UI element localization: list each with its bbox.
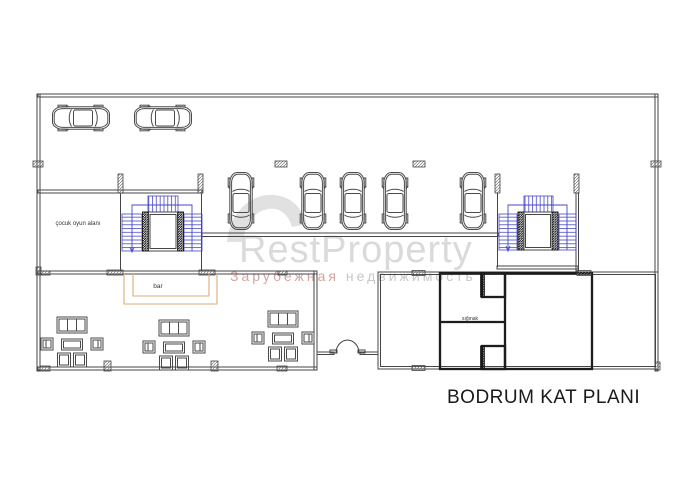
car-icon xyxy=(340,173,366,230)
seating-group xyxy=(252,311,314,361)
lounge-right-wall xyxy=(314,271,317,370)
top-wall xyxy=(38,94,658,97)
corridor-edge xyxy=(202,233,498,237)
car-icon xyxy=(300,173,326,230)
car-icon xyxy=(53,105,110,131)
elevator-shaft-wall xyxy=(178,212,184,251)
basement-floor-plan-page: RestProperty Зарубежная недвижимость xyxy=(0,0,689,480)
entrance-double-door xyxy=(330,340,365,353)
right-building-outer-wall xyxy=(378,272,658,369)
elevator-shaft-wall xyxy=(143,212,149,251)
car-icon xyxy=(460,173,486,230)
elevator-shaft-wall xyxy=(518,212,524,250)
left-wall xyxy=(37,94,40,371)
lounge-top-wall xyxy=(38,271,317,274)
page-title: BODRUM KAT PLANI xyxy=(447,387,677,409)
seating-group xyxy=(41,317,103,367)
play-area-label: çocuk oyun alanı xyxy=(38,221,118,227)
left-stairwell xyxy=(121,193,203,271)
car-icon xyxy=(135,105,192,131)
shelter-label: sığınak xyxy=(448,316,492,322)
bar-label: bar xyxy=(128,283,188,290)
seating-group xyxy=(143,320,205,370)
elevator-shaft-wall xyxy=(552,212,558,250)
right-stairwell xyxy=(497,193,578,269)
right-building-inner-line xyxy=(381,275,656,367)
car-icon xyxy=(382,173,408,230)
car-icon xyxy=(228,173,254,230)
